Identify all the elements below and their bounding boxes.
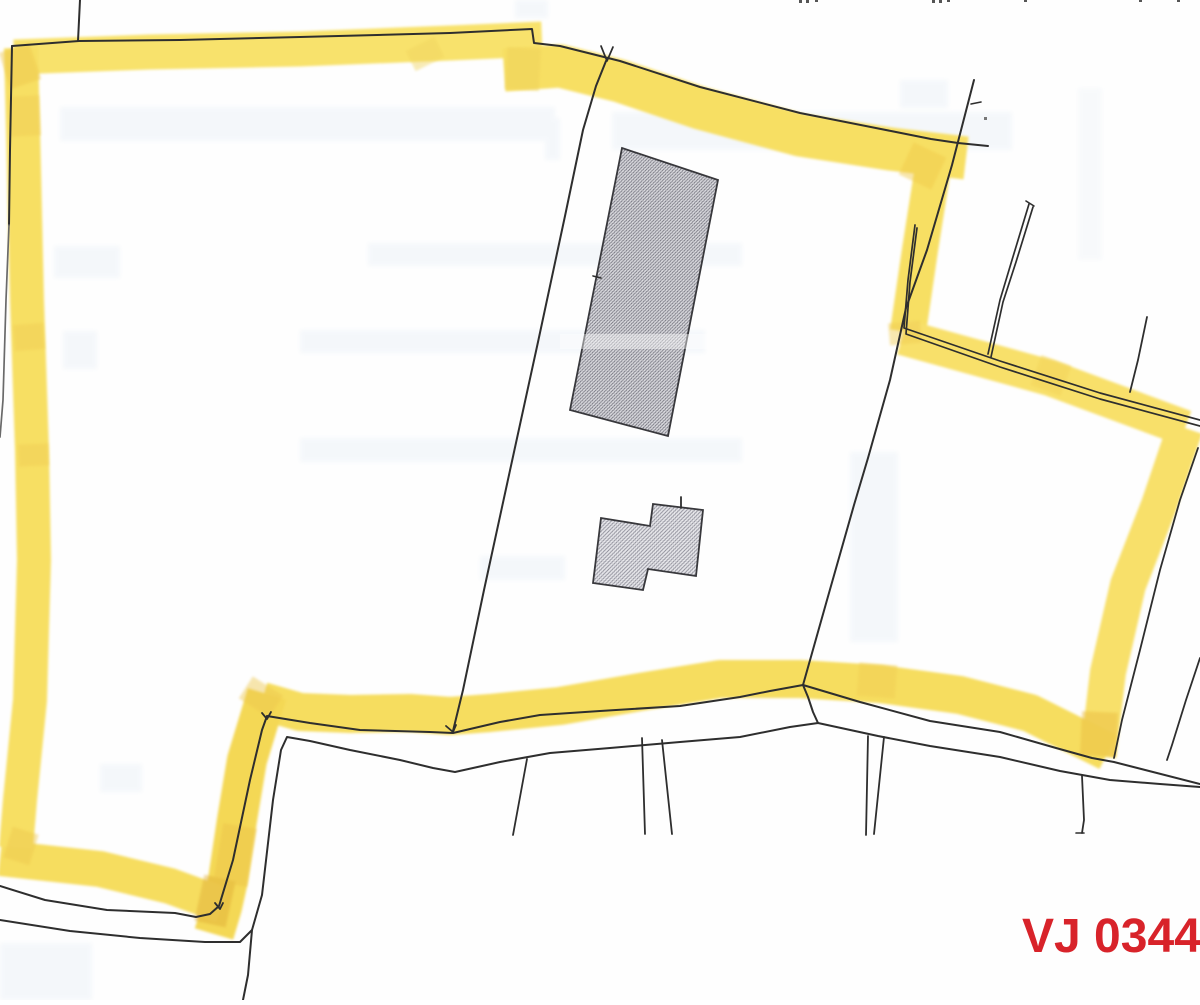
svg-text:VJ 0344: VJ 0344 xyxy=(1022,910,1200,963)
